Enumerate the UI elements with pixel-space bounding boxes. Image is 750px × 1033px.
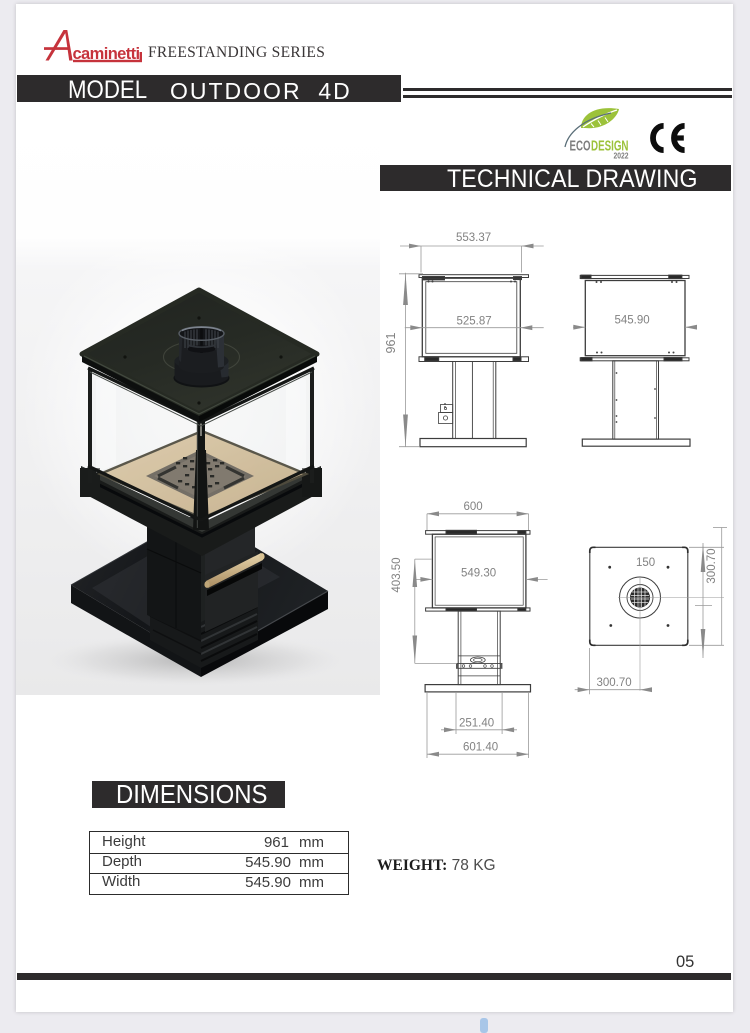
svg-text:300.70: 300.70 (597, 677, 632, 689)
svg-text:525.87: 525.87 (457, 316, 492, 328)
svg-text:300.70: 300.70 (706, 548, 718, 583)
svg-text:601.40: 601.40 (463, 742, 498, 754)
svg-text:545.90: 545.90 (615, 315, 650, 327)
svg-text:150: 150 (636, 557, 655, 569)
svg-text:549.30: 549.30 (461, 568, 496, 580)
svg-text:961: 961 (385, 333, 398, 354)
svg-text:600: 600 (464, 501, 483, 513)
svg-text:553.37: 553.37 (456, 232, 491, 244)
svg-text:ECO: ECO (570, 139, 591, 155)
svg-text:2022: 2022 (614, 152, 629, 161)
svg-text:403.50: 403.50 (391, 557, 403, 592)
svg-text:251.40: 251.40 (459, 718, 494, 730)
